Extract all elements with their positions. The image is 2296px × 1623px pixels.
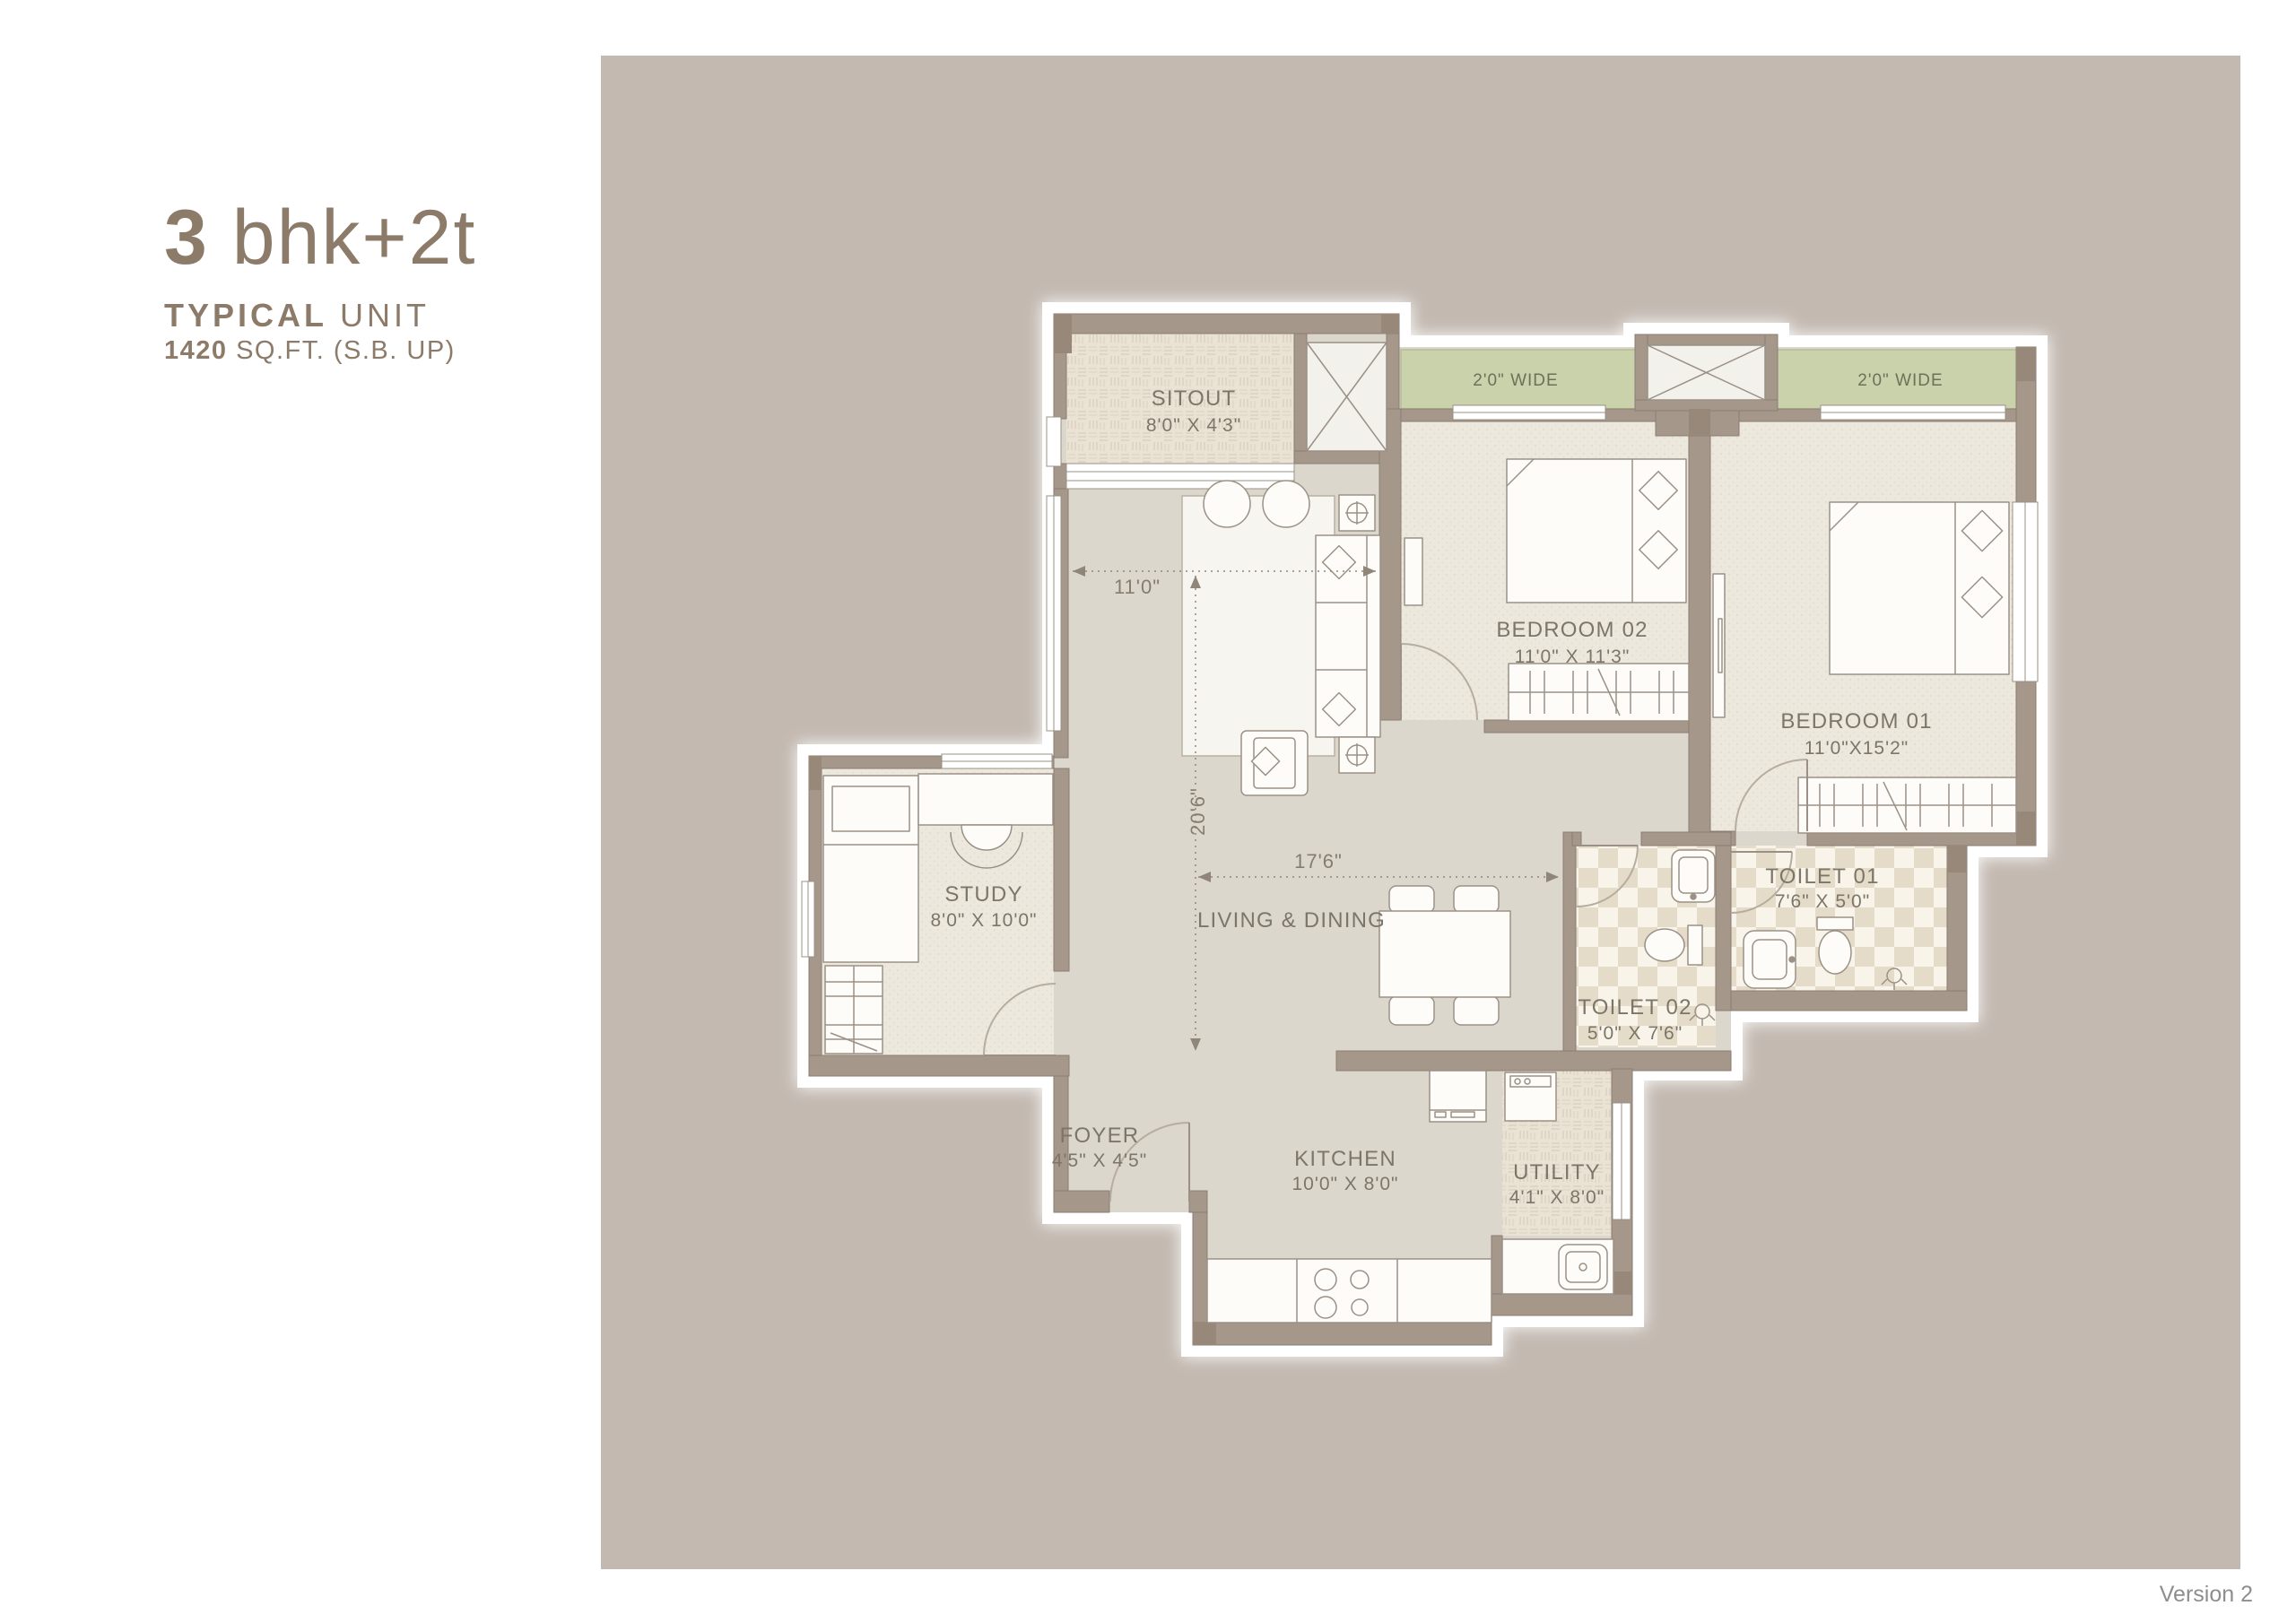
floorplan-panel: SITOUT 8'0" X 4'3" 2'0" WIDE 2'0" WIDE B…: [601, 56, 2240, 1569]
fridge: [1430, 1071, 1486, 1122]
toilet02-label: TOILET 02: [1578, 995, 1692, 1020]
sitout-label: SITOUT: [1152, 386, 1237, 411]
version-label: Version 2: [2009, 1582, 2253, 1608]
toilet02-dims: 5'0" X 7'6": [1587, 1023, 1683, 1044]
armchair: [1241, 731, 1308, 795]
bedroom01-tv-panel: [1713, 574, 1725, 717]
utility-dims: 4'1" X 8'0": [1509, 1187, 1605, 1208]
unit-subtitle: TYPICAL UNIT: [164, 299, 476, 332]
foyer-label: FOYER: [1060, 1124, 1140, 1148]
floorplan-svg: SITOUT 8'0" X 4'3" 2'0" WIDE 2'0" WIDE B…: [601, 56, 2240, 1569]
unit-area-unit: SQ.FT. (S.B. UP): [228, 336, 456, 365]
kitchen-dims: 10'0" X 8'0": [1292, 1174, 1399, 1194]
bedroom01-dims: 11'0"X15'2": [1805, 738, 1909, 759]
toilet01-label: TOILET 01: [1765, 864, 1879, 889]
unit-type-number: 3: [164, 195, 209, 281]
tv-console: [1405, 538, 1422, 605]
dim-living-width: 11'0": [1114, 576, 1161, 598]
dim-living-dining-width: 17'6": [1294, 850, 1343, 872]
washing-machine: [1505, 1072, 1556, 1121]
living-label: LIVING & DINING: [1197, 908, 1386, 933]
bedroom02-wardrobe: [1509, 664, 1689, 721]
toilet01-dims: 7'6" X 5'0": [1775, 891, 1870, 912]
living-rug: [1182, 496, 1335, 756]
pouf: [1204, 481, 1250, 527]
sofa: [1316, 535, 1380, 737]
bedroom02-bed: [1507, 459, 1686, 603]
toilet02-sink: [1672, 850, 1715, 902]
bedroom01-wardrobe: [1798, 777, 2016, 833]
study-label: STUDY: [944, 882, 1022, 907]
unit-subtitle-bold: TYPICAL: [164, 297, 327, 334]
toilet01-wc: [1817, 917, 1853, 974]
side-table: [1339, 495, 1375, 531]
unit-area-value: 1420: [164, 336, 228, 365]
toilet02-wc: [1645, 925, 1702, 965]
unit-area: 1420 SQ.FT. (S.B. UP): [164, 338, 476, 364]
study-wardrobe: [825, 966, 883, 1054]
kitchen-label: KITCHEN: [1294, 1147, 1396, 1171]
balcony-label-left: 2'0" WIDE: [1473, 371, 1558, 390]
bedroom02-label: BEDROOM 02: [1496, 618, 1648, 642]
study-dims: 8'0" X 10'0": [931, 910, 1038, 931]
sitout-dims: 8'0" X 4'3": [1146, 415, 1241, 436]
unit-subtitle-light: UNIT: [327, 297, 430, 334]
pouf: [1263, 481, 1309, 527]
bedroom02-dims: 11'0" X 11'3": [1515, 647, 1631, 667]
dim-living-length: 20'6": [1187, 787, 1209, 836]
balcony-label-right: 2'0" WIDE: [1857, 371, 1943, 390]
toilet01-sink: [1744, 931, 1796, 988]
title-block: 3 bhk+2t TYPICAL UNIT 1420 SQ.FT. (S.B. …: [164, 199, 476, 364]
study-bed: [823, 776, 918, 962]
foyer-dims: 4'5" X 4'5": [1052, 1150, 1147, 1171]
utility-label: UTILITY: [1513, 1160, 1601, 1185]
unit-type-suffix: bhk+2t: [209, 195, 477, 281]
side-table: [1339, 737, 1375, 773]
utility-sink: [1502, 1239, 1613, 1294]
page: 3 bhk+2t TYPICAL UNIT 1420 SQ.FT. (S.B. …: [0, 0, 2296, 1623]
bedroom01-bed: [1830, 502, 2009, 674]
kitchen-counter: [1207, 1259, 1492, 1323]
bedroom01-label: BEDROOM 01: [1780, 709, 1932, 733]
unit-type-title: 3 bhk+2t: [164, 199, 476, 276]
